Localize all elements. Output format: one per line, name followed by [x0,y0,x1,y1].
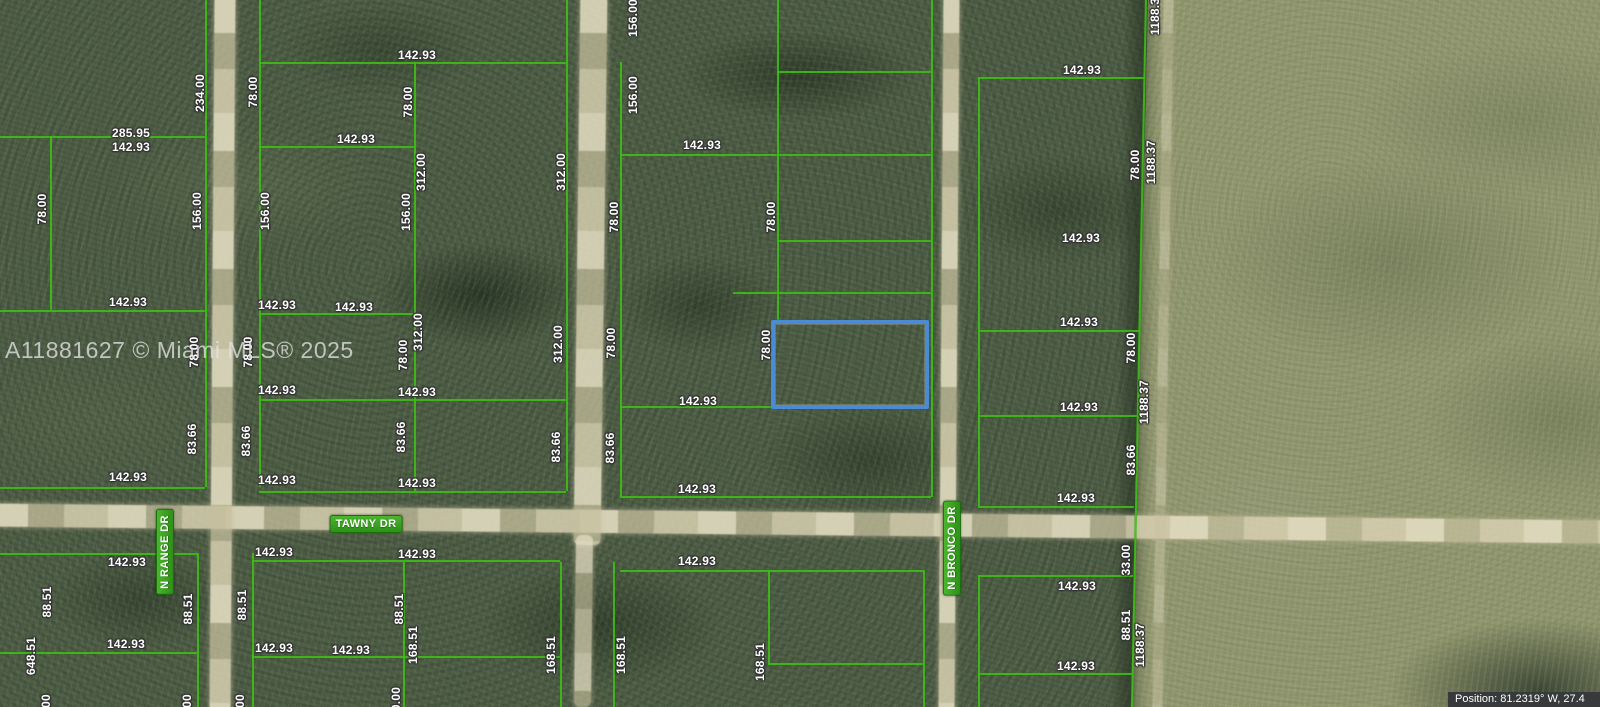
mls-listing-map-photo: 285.95142.93142.93142.93142.93142.93142.… [0,0,1600,707]
mls-watermark: A11881627 © Miami MLS® 2025 [5,337,354,364]
street-label-n-bronco-dr: N BRONCO DR [943,500,961,595]
position-bar: Position: 81.2319° W, 27.4 [1448,692,1600,707]
street-label-tawny-dr: TAWNY DR [330,515,403,533]
street-label-n-range-dr: N RANGE DR [156,509,174,595]
position-text: Position: 81.2319° W, 27.4 [1455,693,1585,705]
